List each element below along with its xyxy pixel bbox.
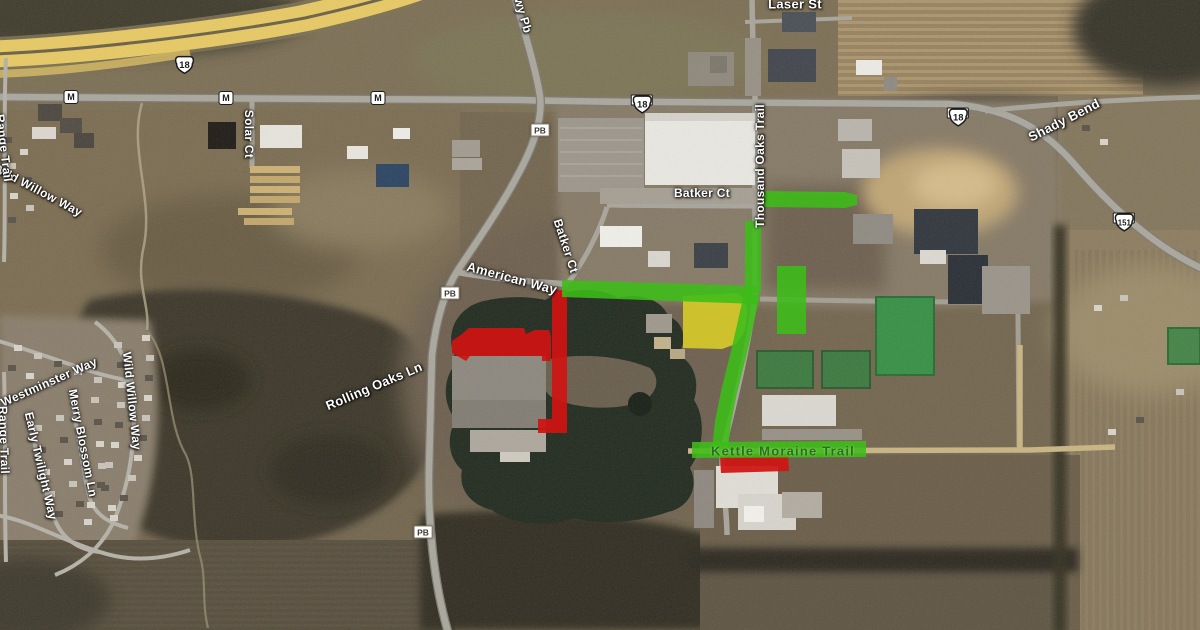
highlight-green-batker-ct-east: [763, 191, 857, 208]
satellite-map-canvas[interactable]: Trail: [0, 0, 1200, 630]
highlight-green-parcel: [777, 266, 806, 334]
highlight-green-kettle-moraine: [692, 441, 866, 458]
image-noise: [0, 0, 1200, 630]
highlight-green-thousand-oaks-north: [745, 221, 761, 293]
satellite-imagery: Trail: [0, 0, 1200, 630]
